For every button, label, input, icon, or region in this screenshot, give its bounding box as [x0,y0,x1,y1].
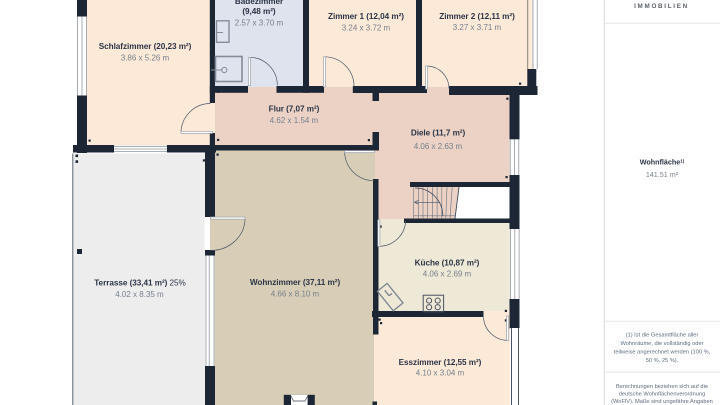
svg-text:4.62 x 1.54 m: 4.62 x 1.54 m [270,116,319,125]
svg-text:Berechnungen beziehen sich auf: Berechnungen beziehen sich auf die [616,384,708,390]
svg-text:50 %, 25 %).: 50 %, 25 %). [646,358,679,364]
svg-text:(9,48 m²): (9,48 m²) [242,7,276,16]
svg-text:3.86 x 5.26 m: 3.86 x 5.26 m [121,54,170,63]
svg-text:4.02 x 8.35 m: 4.02 x 8.35 m [115,290,164,299]
svg-text:2.57 x 3.70 m: 2.57 x 3.70 m [235,19,284,28]
svg-text:Wohnzimmer (37,11 m²): Wohnzimmer (37,11 m²) [250,278,341,287]
svg-text:4.66 x 8.10 m: 4.66 x 8.10 m [271,290,320,299]
svg-text:Flur (7,07 m²): Flur (7,07 m²) [269,105,320,114]
svg-text:Diele (11,7 m²): Diele (11,7 m²) [411,129,466,138]
svg-text:Wohnräume, die vollständig ode: Wohnräume, die vollständig oder [620,341,703,347]
svg-text:deutsche Wohnflächenverordnung: deutsche Wohnflächenverordnung [619,392,706,398]
svg-text:Zimmer 2 (12,11 m²): Zimmer 2 (12,11 m²) [439,12,515,21]
svg-text:4.06 x 2.63 m: 4.06 x 2.63 m [414,142,463,151]
svg-text:Zimmer 1 (12,04 m²): Zimmer 1 (12,04 m²) [328,12,404,21]
svg-text:4.06 x 2.69 m: 4.06 x 2.69 m [423,270,472,279]
svg-text:Terrasse (33,41 m²) 25%: Terrasse (33,41 m²) 25% [94,279,186,288]
svg-text:teilweise angerechnet werden (: teilweise angerechnet werden (100 %, [614,350,711,356]
svg-text:(1) Ist die Gesamtfläche aller: (1) Ist die Gesamtfläche aller [626,333,699,339]
svg-text:Schlafzimmer (20,23 m²): Schlafzimmer (20,23 m²) [99,42,192,51]
svg-text:3.27 x 3.71 m: 3.27 x 3.71 m [453,23,502,32]
svg-text:Esszimmer (12,55 m²): Esszimmer (12,55 m²) [399,358,482,367]
svg-text:Badezimmer: Badezimmer [235,0,284,6]
svg-text:(WoFlV). Maße sind ungefähre A: (WoFlV). Maße sind ungefähre Angaben [611,399,713,405]
svg-text:141.51 m²: 141.51 m² [646,170,679,179]
svg-text:4.10 x 3.04 m: 4.10 x 3.04 m [416,369,465,378]
svg-text:Küche (10,87 m²): Küche (10,87 m²) [415,259,480,268]
svg-text:Wohnfläche1): Wohnfläche1) [640,158,685,167]
svg-text:IMMOBILIEN: IMMOBILIEN [634,3,689,10]
svg-text:3.24 x 3.72 m: 3.24 x 3.72 m [342,24,391,33]
